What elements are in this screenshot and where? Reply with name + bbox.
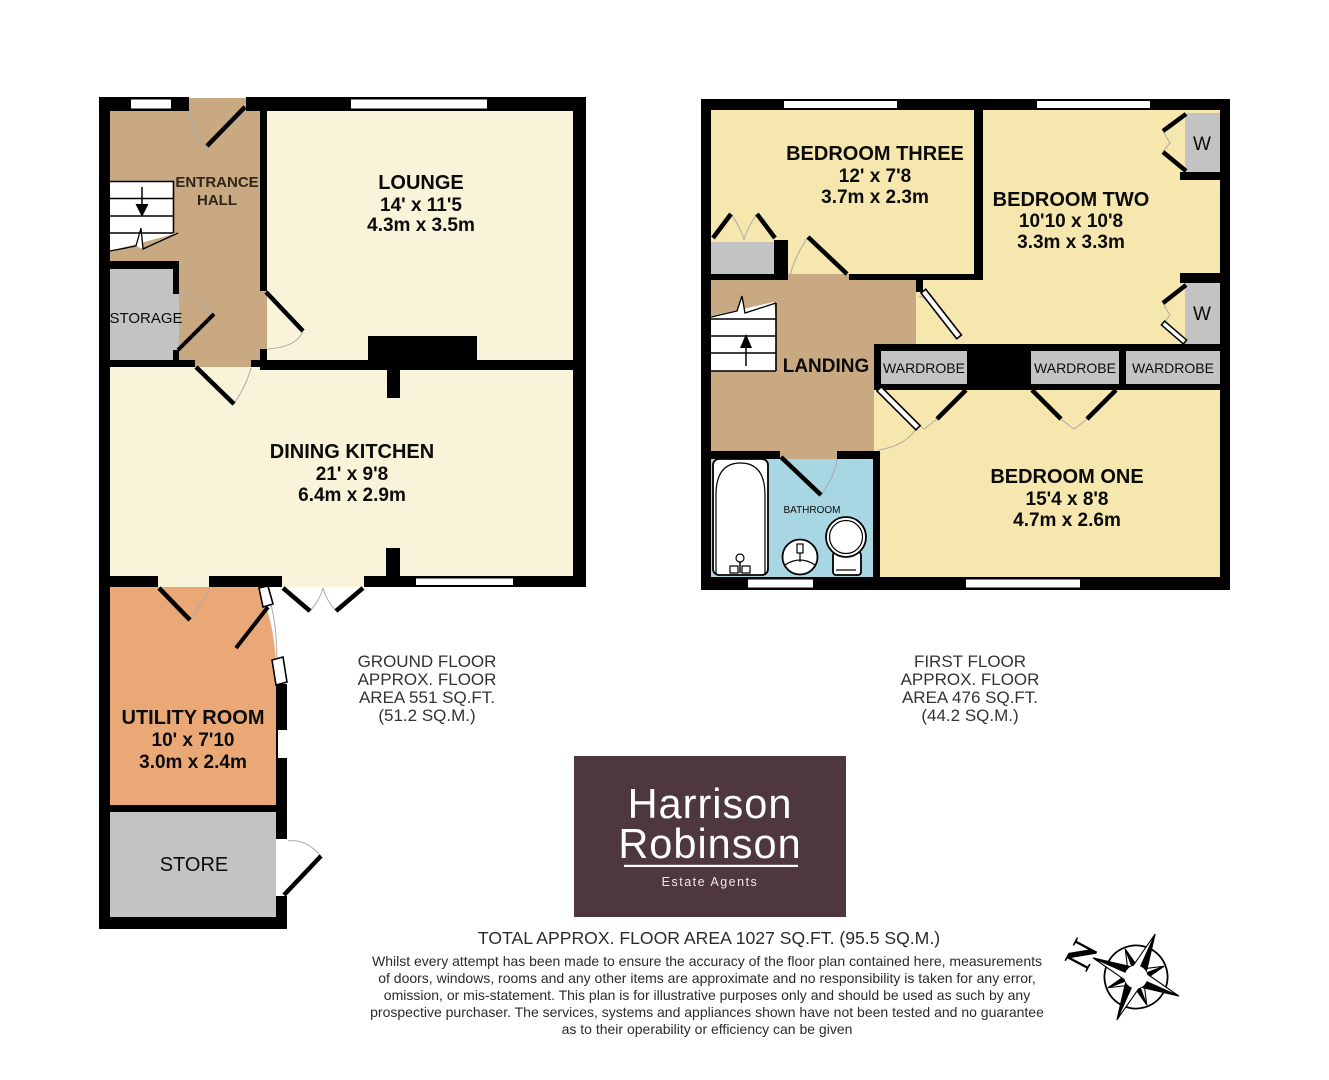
svg-text:prospective purchaser. The ser: prospective purchaser. The services, sys…	[370, 1004, 1044, 1020]
svg-text:APPROX. FLOOR: APPROX. FLOOR	[901, 670, 1040, 689]
svg-text:LANDING: LANDING	[783, 356, 870, 377]
svg-text:APPROX. FLOOR: APPROX. FLOOR	[358, 670, 497, 689]
svg-text:WARDROBE: WARDROBE	[883, 360, 965, 376]
svg-text:6.4m x 2.9m: 6.4m x 2.9m	[298, 485, 406, 506]
svg-text:BEDROOM THREE: BEDROOM THREE	[786, 143, 964, 165]
svg-text:3.7m x 2.3m: 3.7m x 2.3m	[821, 187, 929, 208]
svg-text:W: W	[1193, 134, 1211, 155]
svg-text:10' x 7'10: 10' x 7'10	[152, 730, 235, 751]
svg-text:STORE: STORE	[160, 854, 229, 876]
svg-text:3.0m x 2.4m: 3.0m x 2.4m	[139, 752, 247, 773]
svg-text:WARDROBE: WARDROBE	[1034, 360, 1116, 376]
svg-text:STORAGE: STORAGE	[109, 310, 182, 327]
svg-text:UTILITY ROOM: UTILITY ROOM	[122, 707, 265, 729]
svg-text:AREA 476 SQ.FT.: AREA 476 SQ.FT.	[902, 688, 1038, 707]
svg-text:DINING KITCHEN: DINING KITCHEN	[270, 441, 434, 463]
svg-text:15'4 x 8'8: 15'4 x 8'8	[1026, 489, 1109, 510]
svg-text:Whilst every attempt has been: Whilst every attempt has been made to en…	[372, 953, 1042, 969]
svg-text:3.3m x 3.3m: 3.3m x 3.3m	[1017, 232, 1125, 253]
svg-text:ENTRANCE: ENTRANCE	[175, 174, 258, 191]
svg-text:TOTAL APPROX. FLOOR AREA 1027: TOTAL APPROX. FLOOR AREA 1027 SQ.FT. (95…	[478, 928, 940, 948]
svg-text:GROUND FLOOR: GROUND FLOOR	[358, 652, 497, 671]
svg-text:4.3m x 3.5m: 4.3m x 3.5m	[367, 215, 475, 236]
svg-text:12' x 7'8: 12' x 7'8	[839, 166, 911, 187]
svg-text:21' x 9'8: 21' x 9'8	[316, 464, 388, 485]
svg-text:as to their operability or eff: as to their operability or efficiency ca…	[562, 1021, 853, 1037]
svg-text:Robinson: Robinson	[618, 820, 801, 867]
svg-text:W: W	[1193, 304, 1211, 325]
svg-text:omission, or mis-statement. Th: omission, or mis-statement. This plan is…	[384, 987, 1030, 1003]
svg-text:10'10 x 10'8: 10'10 x 10'8	[1019, 211, 1123, 232]
svg-text:HALL: HALL	[197, 192, 237, 209]
svg-text:AREA 551 SQ.FT.: AREA 551 SQ.FT.	[359, 688, 495, 707]
svg-text:LOUNGE: LOUNGE	[378, 172, 464, 194]
svg-text:(51.2 SQ.M.): (51.2 SQ.M.)	[378, 706, 475, 725]
svg-text:BEDROOM ONE: BEDROOM ONE	[990, 466, 1143, 488]
svg-text:WARDROBE: WARDROBE	[1132, 360, 1214, 376]
svg-text:of doors, windows, rooms and a: of doors, windows, rooms and any other i…	[378, 970, 1036, 986]
svg-text:BATHROOM: BATHROOM	[783, 505, 840, 516]
svg-text:BEDROOM TWO: BEDROOM TWO	[993, 189, 1150, 211]
svg-text:(44.2 SQ.M.): (44.2 SQ.M.)	[921, 706, 1018, 725]
svg-text:4.7m x 2.6m: 4.7m x 2.6m	[1013, 510, 1121, 531]
svg-text:Estate Agents: Estate Agents	[662, 875, 759, 889]
svg-text:14' x 11'5: 14' x 11'5	[380, 195, 462, 216]
svg-text:FIRST FLOOR: FIRST FLOOR	[914, 652, 1026, 671]
